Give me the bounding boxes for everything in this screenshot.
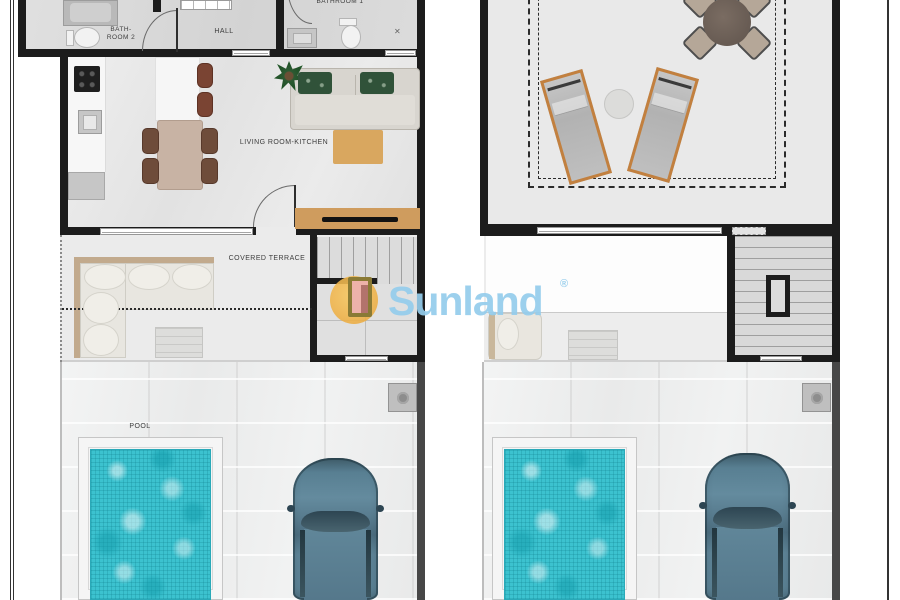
rug (333, 130, 383, 164)
sink-basin (83, 115, 97, 130)
sofa-seat (295, 95, 415, 125)
wall (153, 0, 161, 12)
pool (90, 449, 211, 600)
shower (63, 0, 118, 26)
living-terrace-window (100, 228, 253, 235)
bathroom2-door-leaf (176, 8, 178, 52)
washbasin (293, 33, 312, 44)
coffee-table (155, 327, 203, 358)
car-side-window (778, 528, 783, 597)
ac-unit (388, 383, 417, 412)
kitchen-island (155, 57, 200, 121)
living-door-opening (256, 227, 296, 235)
car-windshield (713, 507, 783, 529)
green-cushion (360, 72, 394, 94)
seat-cushion (83, 292, 119, 324)
seat-cushion (83, 324, 119, 356)
stair-opening (732, 227, 766, 235)
page-border-right (887, 0, 889, 600)
car-roof (716, 527, 779, 600)
bar-stool (197, 92, 213, 117)
side-table-round (604, 89, 634, 119)
plot-edge (60, 362, 62, 600)
back-cushion (172, 264, 212, 290)
room-label-pool: POOL (115, 423, 165, 432)
toilet-bowl (341, 25, 361, 49)
car-top-view (705, 453, 790, 600)
tv (322, 217, 398, 222)
hall-closet (180, 0, 232, 10)
car-top-view (293, 458, 378, 600)
extractor-fan-icon: ✕ (394, 27, 401, 36)
plot-wall (417, 362, 425, 600)
dining-chair (142, 158, 159, 184)
plot-edge (482, 362, 484, 600)
sunland-door-icon (348, 277, 372, 317)
wall (832, 0, 840, 362)
bathroom1-window (385, 50, 416, 56)
car-mirror (788, 502, 796, 509)
stair-wall (310, 235, 317, 362)
car-mirror (699, 502, 707, 509)
dining-chair (142, 128, 159, 154)
bathroom2-label-line1: BATH- (110, 26, 131, 33)
kitchen-sink (78, 110, 102, 134)
bar-stool (197, 63, 213, 88)
plot-wall (832, 362, 840, 600)
terrace-garden-line (484, 360, 727, 362)
car-mirror (287, 505, 295, 512)
car-windshield (301, 511, 371, 532)
sunland-door-shade (361, 285, 368, 313)
terrace-garden-line (60, 360, 310, 362)
fridge (68, 172, 105, 200)
wall (480, 0, 488, 228)
wall (60, 57, 68, 235)
page-border-left-outer (10, 0, 11, 600)
room-label-living-kitchen: LIVING ROOM-KITCHEN (238, 139, 330, 148)
car-side-window (366, 530, 371, 597)
room-label-covered-terrace: COVERED TERRACE (224, 255, 310, 264)
ac-unit (802, 383, 831, 412)
solarium-long-window (537, 227, 722, 234)
washbasin-cabinet (287, 28, 317, 48)
pool (504, 449, 625, 600)
dining-chair (201, 158, 218, 184)
wall (18, 49, 425, 57)
room-label-bathroom1: BATHROOM 1 (300, 0, 380, 6)
stair-window (345, 356, 388, 361)
room-label-hall: HALL (200, 28, 248, 37)
stair-void (766, 275, 790, 317)
terrace-open-edge (60, 235, 62, 362)
hall-sliding-door (232, 50, 270, 56)
back-cushion (128, 264, 170, 290)
bathroom2-label-line2: ROOM 2 (107, 34, 135, 41)
registered-trademark: ® (560, 278, 568, 290)
sunland-brand-text: Sunland (388, 278, 543, 325)
dining-chair (201, 128, 218, 154)
stair-wall (727, 236, 735, 362)
car-mirror (376, 505, 384, 512)
car-side-window (712, 528, 717, 597)
back-cushion (84, 264, 126, 290)
round-dining-table (703, 0, 751, 46)
green-cushion (298, 72, 332, 94)
toilet (66, 30, 74, 46)
car-side-window (300, 530, 305, 597)
slatted-table (568, 330, 618, 360)
room-label-bathroom2: BATH- ROOM 2 (96, 26, 146, 42)
page-border-left-inner (13, 0, 14, 600)
shower-tray (70, 3, 111, 22)
dining-table (157, 120, 203, 190)
floorplan-sheet: ✕ (0, 0, 900, 600)
stair-window (760, 356, 802, 361)
hob (74, 66, 100, 92)
car-roof (304, 529, 367, 600)
